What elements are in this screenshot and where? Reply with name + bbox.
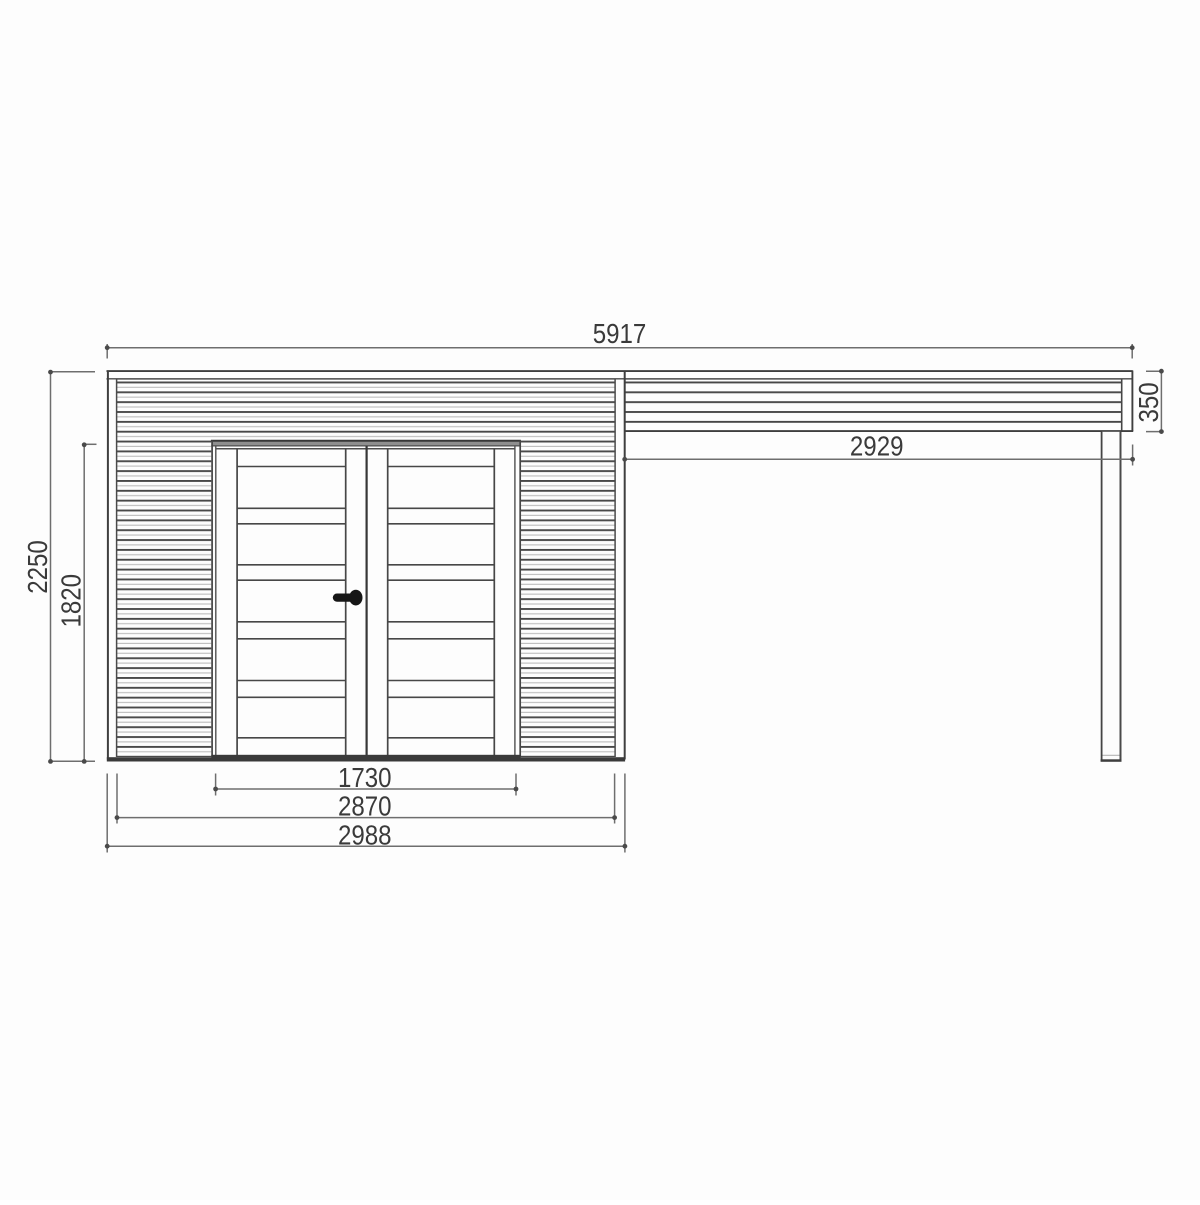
svg-text:2250: 2250 — [21, 540, 53, 594]
svg-text:2988: 2988 — [338, 819, 392, 851]
svg-text:5917: 5917 — [593, 317, 647, 349]
svg-text:2929: 2929 — [850, 430, 904, 462]
svg-text:2870: 2870 — [338, 790, 392, 822]
svg-text:350: 350 — [1132, 382, 1164, 422]
svg-text:1730: 1730 — [338, 761, 392, 793]
svg-text:1820: 1820 — [55, 574, 87, 628]
